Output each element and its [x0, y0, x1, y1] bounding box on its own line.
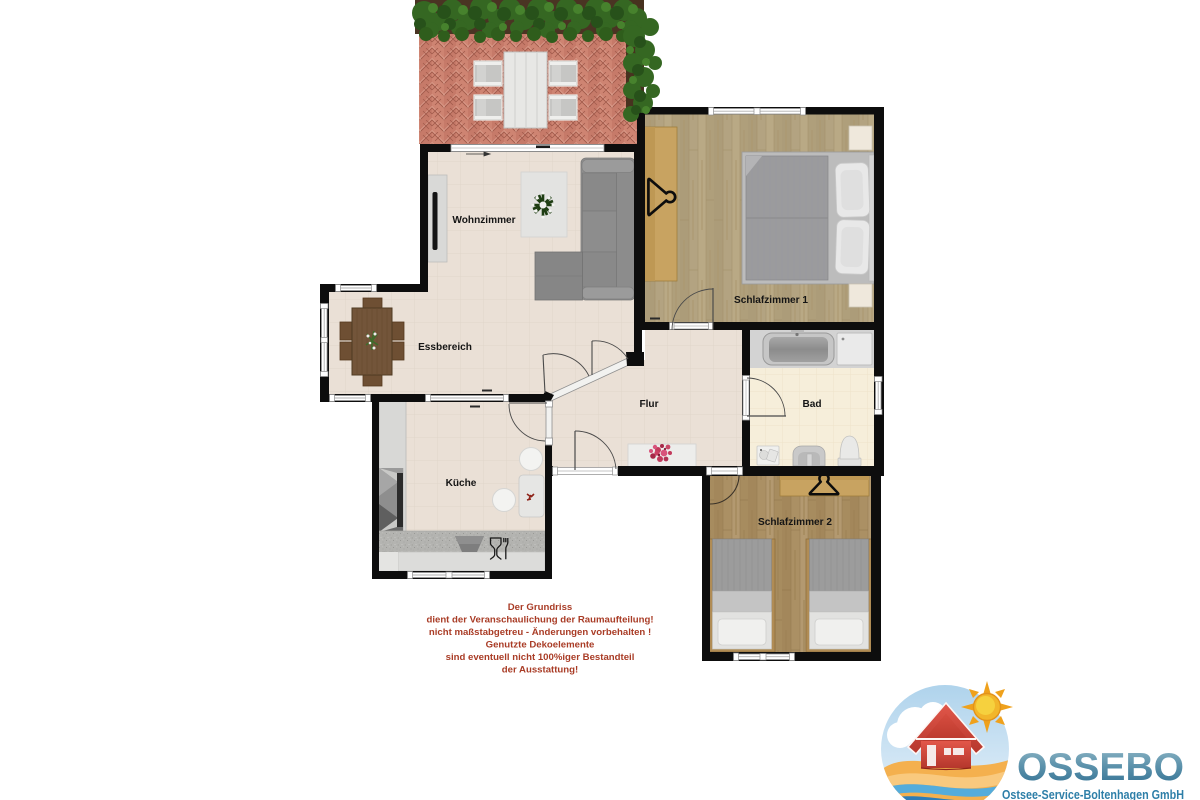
svg-text:Wohnzimmer: Wohnzimmer	[452, 215, 515, 226]
svg-text:Genutzte Dekoelemente: Genutzte Dekoelemente	[486, 640, 595, 651]
svg-text:Küche: Küche	[446, 478, 477, 489]
svg-text:Schlafzimmer 2: Schlafzimmer 2	[758, 517, 832, 528]
svg-text:Flur: Flur	[639, 399, 658, 410]
svg-text:sind eventuell nicht 100%iger: sind eventuell nicht 100%iger Bestandtei…	[446, 652, 635, 663]
svg-text:dient der Veranschaulichung de: dient der Veranschaulichung der Raumauft…	[426, 615, 653, 626]
svg-text:Der Grundriss: Der Grundriss	[508, 602, 573, 613]
svg-text:Schlafzimmer 1: Schlafzimmer 1	[734, 295, 808, 306]
svg-text:Bad: Bad	[802, 399, 821, 410]
svg-text:OSSEBO: OSSEBO	[1017, 746, 1184, 789]
svg-text:Ostsee-Service-Boltenhagen Gmb: Ostsee-Service-Boltenhagen GmbH	[1002, 787, 1184, 800]
svg-text:nicht maßstabgetreu - Änderung: nicht maßstabgetreu - Änderungen vorbeha…	[429, 627, 651, 638]
svg-text:Essbereich: Essbereich	[418, 342, 472, 353]
svg-text:der Ausstattung!: der Ausstattung!	[502, 665, 578, 676]
